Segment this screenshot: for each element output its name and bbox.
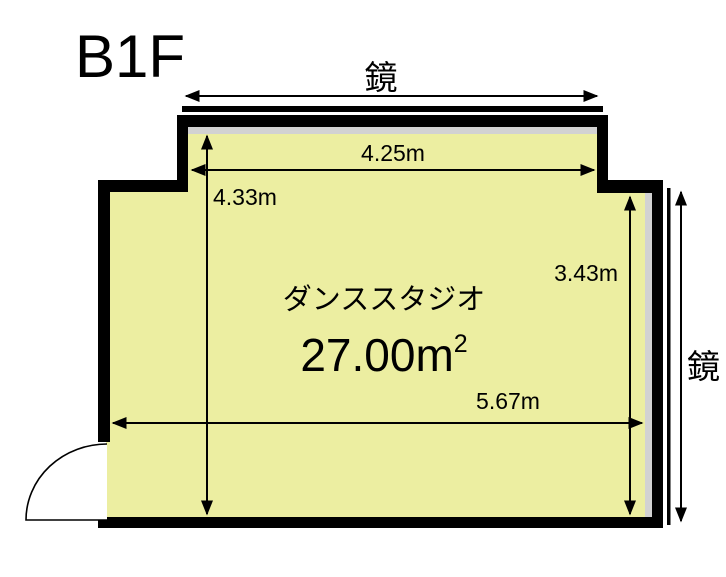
room-area-superscript: 2 xyxy=(454,330,468,358)
room-name-label: ダンススタジオ xyxy=(283,283,485,316)
mirror-strip-top xyxy=(188,127,597,134)
room-area-label: 27.00m2 xyxy=(300,329,467,381)
door-arc xyxy=(26,444,107,520)
dim-label-left-height: 4.33m xyxy=(213,184,277,210)
floor-level-label: B1F xyxy=(75,23,185,90)
floor-plan-page: B1F 鏡 鏡 4.25m 4.33m 3.43m 5.67m ダンススタジオ … xyxy=(0,0,726,577)
mirror-bar-top xyxy=(182,106,603,112)
floor-area xyxy=(110,127,652,517)
dim-label-top-width: 4.25m xyxy=(361,140,425,166)
mirror-right-label: 鏡 xyxy=(687,348,720,385)
mirror-top-label: 鏡 xyxy=(365,59,398,96)
mirror-strip-right xyxy=(645,193,652,517)
mirror-bar-right xyxy=(667,188,671,525)
room-area-value: 27.00m xyxy=(300,329,453,381)
dim-label-right-height: 3.43m xyxy=(554,260,618,286)
dim-label-bottom-width: 5.67m xyxy=(476,388,540,414)
floor-plan-svg: B1F 鏡 鏡 4.25m 4.33m 3.43m 5.67m ダンススタジオ … xyxy=(0,0,726,577)
